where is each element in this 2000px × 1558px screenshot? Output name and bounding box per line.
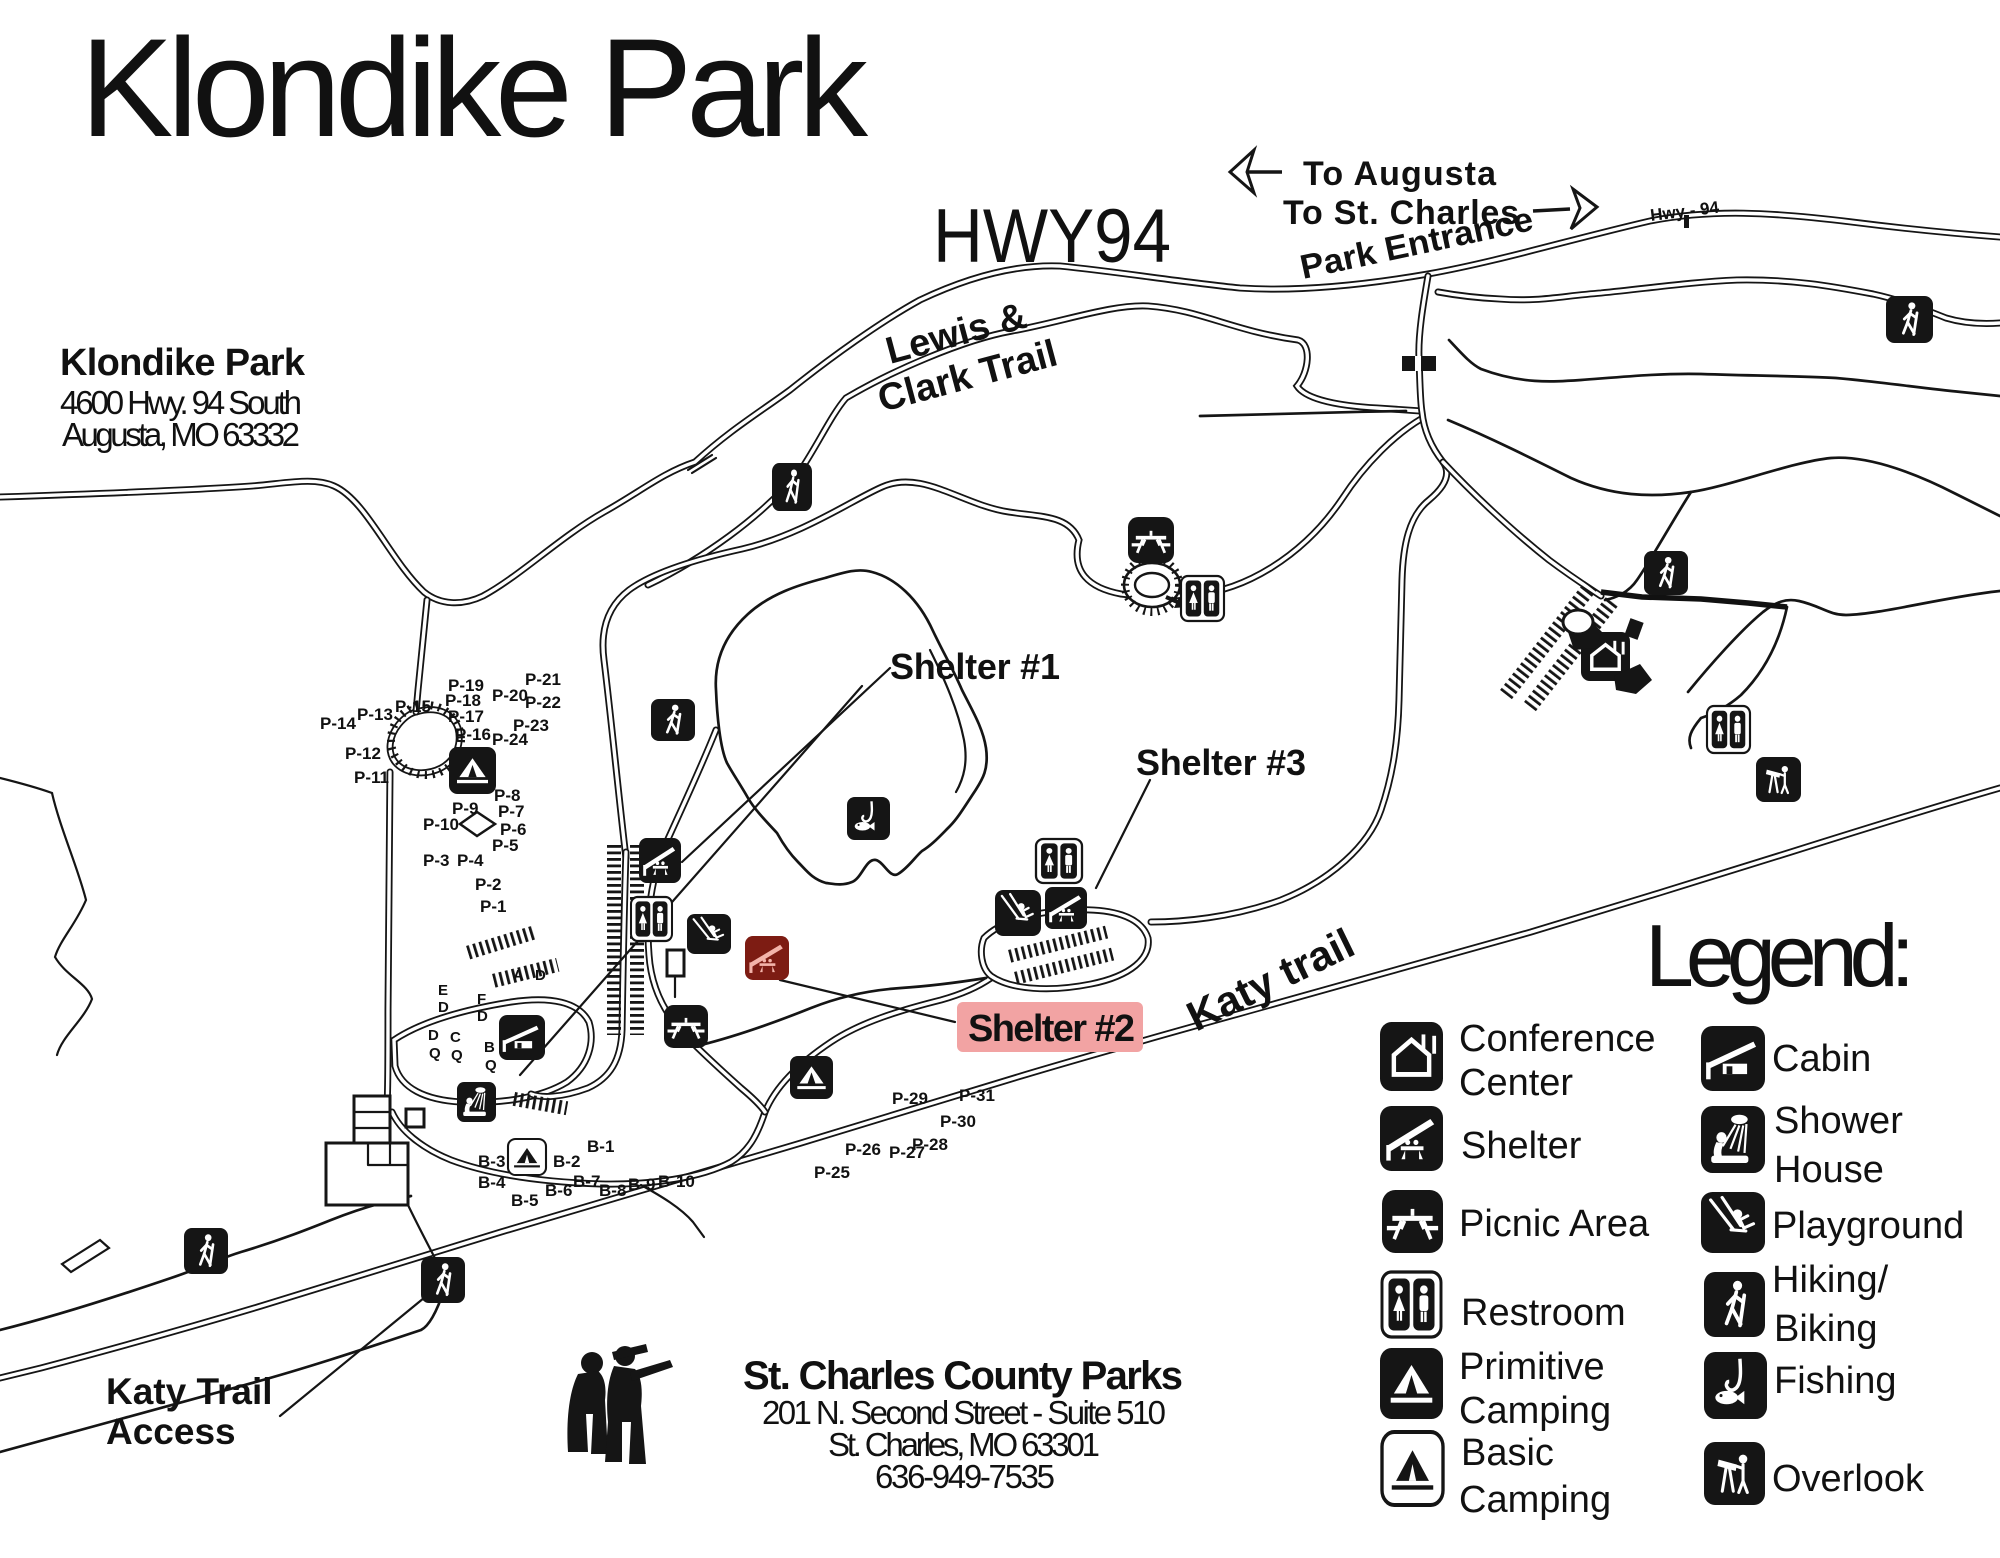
svg-text:B: B xyxy=(484,1039,495,1056)
svg-text:Hiking/: Hiking/ xyxy=(1772,1259,1889,1301)
svg-text:D: D xyxy=(535,967,546,984)
svg-text:Shelter #1: Shelter #1 xyxy=(890,646,1060,687)
svg-text:P-3: P-3 xyxy=(423,851,449,870)
svg-text:P-20: P-20 xyxy=(492,686,528,705)
svg-text:Conference: Conference xyxy=(1459,1018,1655,1060)
svg-text:P-31: P-31 xyxy=(959,1086,995,1105)
svg-text:Q: Q xyxy=(485,1057,497,1074)
svg-text:P-13: P-13 xyxy=(357,705,393,724)
svg-text:P-29: P-29 xyxy=(892,1089,928,1108)
svg-text:P-30: P-30 xyxy=(940,1112,976,1131)
svg-text:P-12: P-12 xyxy=(345,744,381,763)
svg-text:B-7: B-7 xyxy=(573,1172,600,1191)
svg-text:Shower: Shower xyxy=(1774,1100,1903,1142)
svg-text:B-10: B-10 xyxy=(658,1172,695,1191)
svg-text:D: D xyxy=(477,1008,488,1025)
svg-text:Augusta, MO 63332: Augusta, MO 63332 xyxy=(62,416,300,453)
svg-text:P-11: P-11 xyxy=(354,768,389,787)
svg-text:F: F xyxy=(477,991,486,1008)
svg-text:P-15: P-15 xyxy=(395,697,431,716)
svg-text:P-26: P-26 xyxy=(845,1140,881,1159)
svg-text:B-4: B-4 xyxy=(478,1173,506,1192)
svg-text:Klondike Park: Klondike Park xyxy=(60,342,306,384)
svg-text:B-9: B-9 xyxy=(628,1175,655,1194)
svg-text:House: House xyxy=(1774,1149,1884,1191)
svg-text:Katy Trail: Katy Trail xyxy=(106,1371,273,1412)
svg-text:Camping: Camping xyxy=(1459,1479,1611,1521)
svg-text:Picnic Area: Picnic Area xyxy=(1459,1203,1650,1245)
svg-text:P-24: P-24 xyxy=(492,730,528,749)
svg-text:Q: Q xyxy=(451,1047,463,1064)
svg-text:Overlook: Overlook xyxy=(1772,1458,1925,1500)
svg-text:Primitive: Primitive xyxy=(1459,1346,1605,1388)
svg-text:636-949-7535: 636-949-7535 xyxy=(875,1458,1055,1495)
svg-text:St. Charles County Parks: St. Charles County Parks xyxy=(743,1354,1183,1398)
svg-text:Center: Center xyxy=(1459,1062,1573,1104)
svg-text:Klondike Park: Klondike Park xyxy=(80,9,869,166)
svg-text:P-14: P-14 xyxy=(320,714,356,733)
svg-text:P-25: P-25 xyxy=(814,1163,850,1182)
svg-text:P-10: P-10 xyxy=(423,815,459,834)
svg-text:Legend:: Legend: xyxy=(1645,906,1915,1005)
svg-text:B-3: B-3 xyxy=(478,1152,505,1171)
svg-text:P-7: P-7 xyxy=(498,802,524,821)
svg-text:A: A xyxy=(513,967,524,984)
svg-text:D: D xyxy=(428,1027,439,1044)
svg-text:C: C xyxy=(450,1029,461,1046)
svg-text:D: D xyxy=(438,999,449,1016)
svg-text:Basic: Basic xyxy=(1461,1432,1554,1474)
svg-text:Shelter #2: Shelter #2 xyxy=(968,1008,1135,1050)
svg-text:P-5: P-5 xyxy=(492,836,518,855)
svg-text:P-22: P-22 xyxy=(525,693,561,712)
svg-text:Fishing: Fishing xyxy=(1774,1360,1897,1402)
svg-text:B-6: B-6 xyxy=(545,1181,572,1200)
svg-text:P-21: P-21 xyxy=(525,670,561,689)
svg-text:P-2: P-2 xyxy=(475,875,501,894)
svg-text:Biking: Biking xyxy=(1774,1308,1878,1350)
svg-text:P-4: P-4 xyxy=(457,851,484,870)
svg-text:Access: Access xyxy=(106,1411,236,1452)
svg-text:P-17: P-17 xyxy=(448,707,484,726)
svg-text:B-8: B-8 xyxy=(599,1181,626,1200)
svg-text:B-1: B-1 xyxy=(587,1137,614,1156)
svg-text:Shelter #3: Shelter #3 xyxy=(1136,742,1306,783)
svg-text:P-1: P-1 xyxy=(480,897,506,916)
svg-text:Shelter: Shelter xyxy=(1461,1125,1582,1167)
svg-text:P-16: P-16 xyxy=(455,725,491,744)
svg-text:Q: Q xyxy=(429,1045,441,1062)
svg-text:Playground: Playground xyxy=(1772,1205,1964,1247)
svg-text:Camping: Camping xyxy=(1459,1390,1611,1432)
svg-text:Restroom: Restroom xyxy=(1461,1292,1626,1334)
svg-text:P-27: P-27 xyxy=(889,1143,925,1162)
svg-text:B-5: B-5 xyxy=(511,1191,538,1210)
svg-text:B-2: B-2 xyxy=(553,1152,580,1171)
svg-text:HWY94: HWY94 xyxy=(933,194,1171,279)
svg-text:Cabin: Cabin xyxy=(1772,1038,1871,1080)
svg-text:E: E xyxy=(438,982,448,999)
svg-text:To Augusta: To Augusta xyxy=(1303,155,1497,193)
